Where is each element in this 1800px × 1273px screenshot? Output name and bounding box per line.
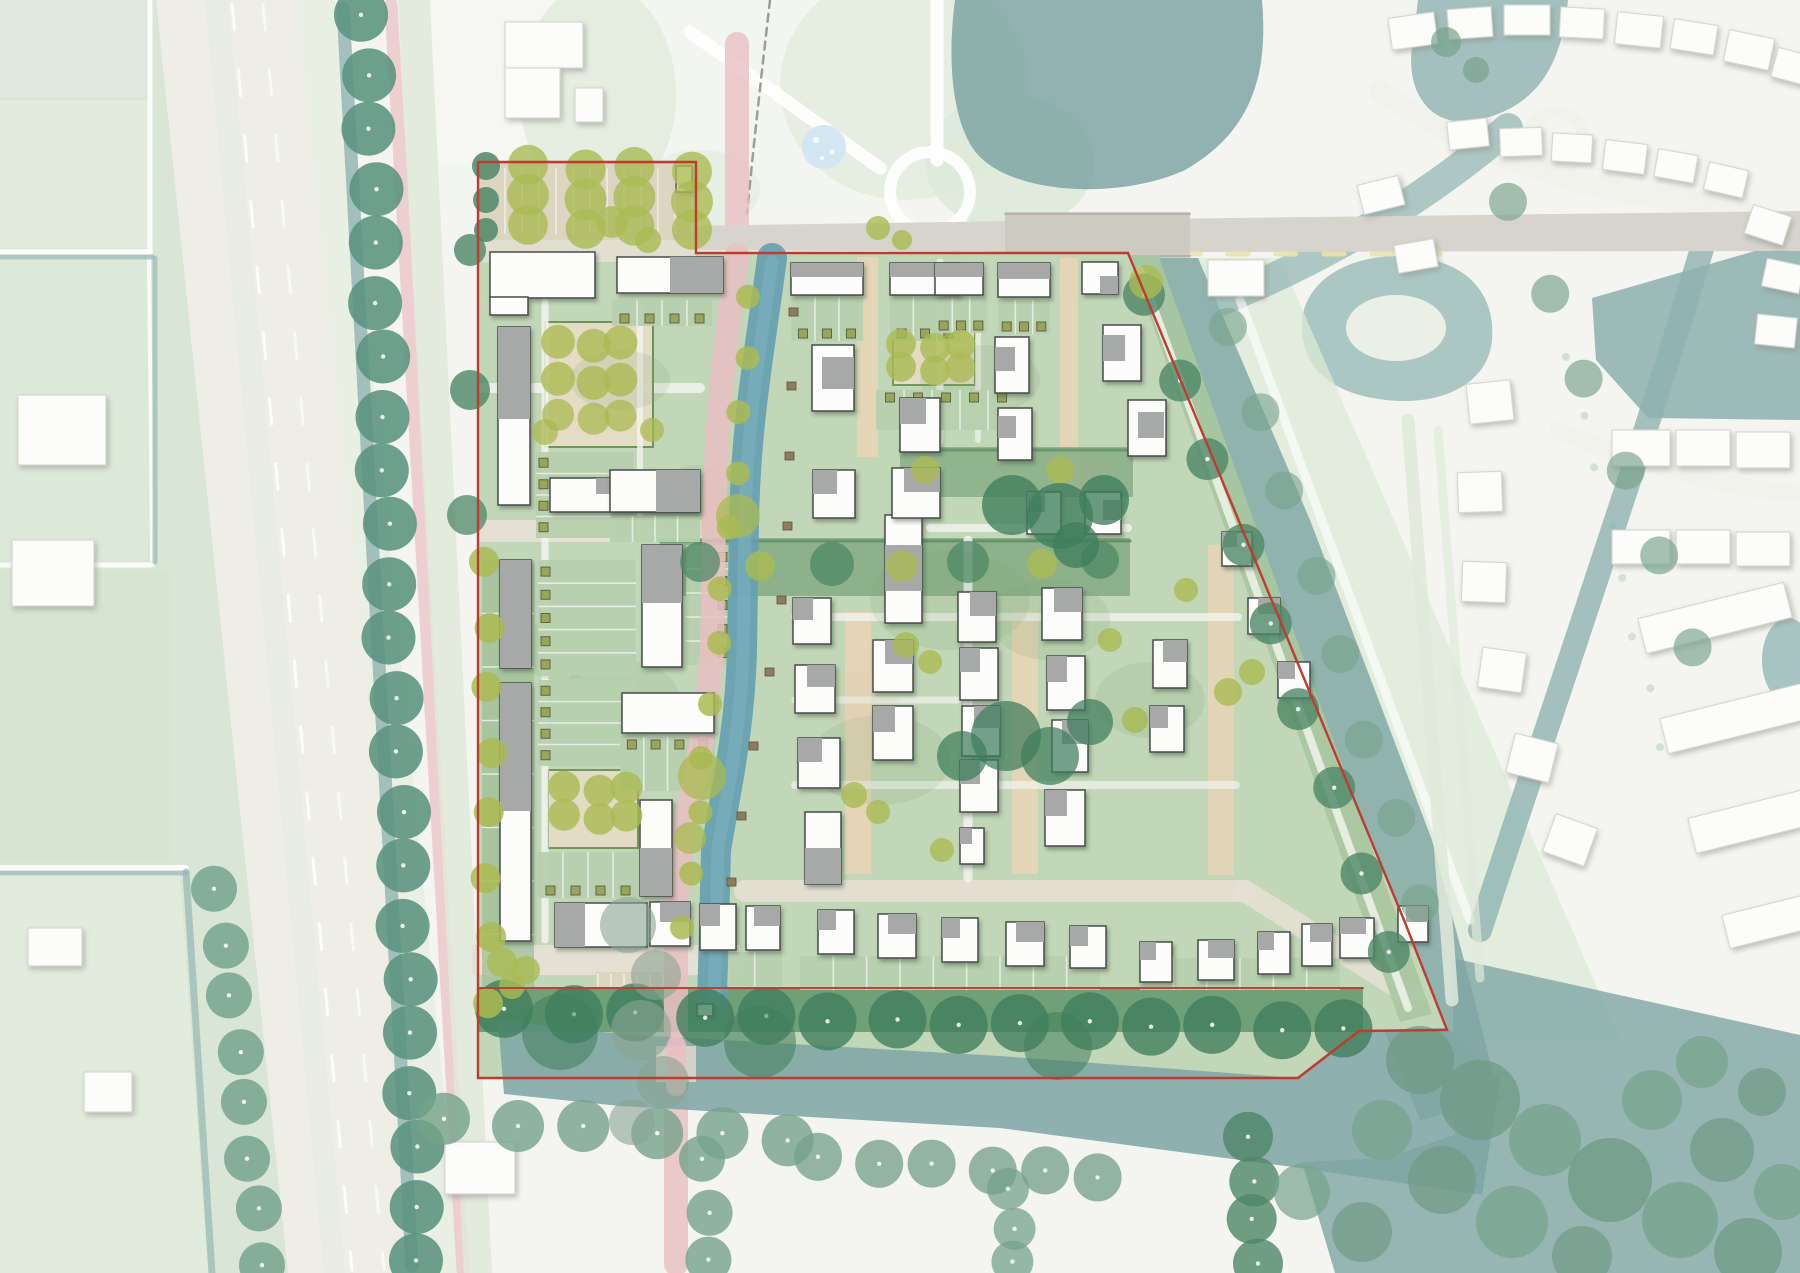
tree-center-dot bbox=[707, 1211, 711, 1215]
trees-38 bbox=[930, 838, 954, 862]
building-roof bbox=[942, 918, 960, 938]
building-roof bbox=[900, 398, 926, 424]
building-roof bbox=[670, 257, 723, 293]
trees-94 bbox=[1431, 27, 1461, 57]
farm-building bbox=[84, 1072, 132, 1112]
boundary-tree-column-tree bbox=[471, 672, 501, 702]
building-roof bbox=[1340, 918, 1366, 934]
trees-66 bbox=[1079, 475, 1129, 525]
garden-shed bbox=[823, 329, 832, 338]
terrace-row bbox=[935, 263, 983, 295]
house bbox=[998, 408, 1032, 460]
tree-center-dot bbox=[212, 887, 216, 891]
street-verge-marks-tree bbox=[1580, 412, 1588, 420]
building-roof bbox=[1140, 942, 1156, 960]
garden-shed bbox=[957, 321, 966, 330]
context-house bbox=[1447, 118, 1490, 150]
trees-87 bbox=[1274, 1164, 1330, 1220]
riverside-trees-tree bbox=[1565, 360, 1603, 398]
tree-center-dot bbox=[895, 1017, 899, 1021]
building-roof bbox=[1100, 276, 1118, 294]
garden-shed bbox=[799, 329, 808, 338]
house bbox=[818, 910, 854, 954]
garden-shed bbox=[675, 740, 684, 749]
building-roof bbox=[960, 648, 980, 672]
building-roof bbox=[798, 738, 822, 762]
building-roof bbox=[998, 263, 1050, 279]
jetty bbox=[749, 742, 758, 750]
tree-center-dot bbox=[442, 1117, 446, 1121]
tree-center-dot bbox=[366, 126, 370, 130]
tree-center-dot bbox=[373, 301, 377, 305]
trees-72 bbox=[600, 897, 656, 953]
trees-76 bbox=[609, 1099, 655, 1145]
tree-center-dot bbox=[700, 1157, 704, 1161]
context-house bbox=[1736, 432, 1790, 468]
jetty bbox=[777, 596, 786, 604]
courtyard-trees-tree bbox=[603, 326, 637, 360]
trees-62 bbox=[947, 541, 989, 583]
street-verge-marks-tree bbox=[1562, 353, 1570, 361]
trees-61 bbox=[810, 542, 854, 586]
house bbox=[793, 598, 831, 644]
context-house bbox=[1504, 5, 1550, 35]
context-building bbox=[575, 88, 603, 122]
house bbox=[1140, 942, 1172, 982]
riverside-trees-tree bbox=[1640, 536, 1678, 574]
house bbox=[1045, 790, 1085, 846]
house bbox=[798, 738, 840, 788]
garden-shed bbox=[620, 314, 629, 323]
tree-center-dot bbox=[380, 468, 384, 472]
garden-shed bbox=[541, 660, 550, 669]
trees-81 bbox=[1642, 1182, 1718, 1258]
house bbox=[900, 398, 940, 452]
tree-center-dot bbox=[401, 863, 405, 867]
river-tree-row-tree bbox=[1298, 557, 1336, 595]
house bbox=[1042, 588, 1082, 640]
context-house bbox=[1559, 7, 1605, 39]
garden-cells bbox=[538, 560, 636, 676]
trees-67 bbox=[1053, 522, 1099, 568]
canal-tree-row-tree bbox=[679, 862, 703, 886]
garden-shed bbox=[539, 523, 548, 532]
trees-54 bbox=[640, 418, 664, 442]
tree-center-dot bbox=[929, 1161, 933, 1165]
tree-center-dot bbox=[380, 415, 384, 419]
tree-center-dot bbox=[1018, 1021, 1022, 1025]
courtyard-trees-tree bbox=[886, 352, 916, 382]
tree-center-dot bbox=[409, 977, 413, 981]
tree-center-dot bbox=[224, 943, 228, 947]
context-house bbox=[1602, 140, 1647, 175]
building-roof bbox=[754, 906, 780, 926]
courtyard-trees-tree bbox=[548, 771, 580, 803]
tree-center-dot bbox=[381, 354, 385, 358]
jetty bbox=[783, 522, 792, 530]
canal-tree-row-tree bbox=[736, 346, 760, 370]
courtyard-trees-tree bbox=[610, 772, 642, 804]
building-roof bbox=[1163, 640, 1187, 662]
jetty bbox=[727, 878, 736, 886]
parking-trees-tree bbox=[672, 210, 712, 250]
tree-center-dot bbox=[388, 522, 392, 526]
garden-shed bbox=[571, 886, 580, 895]
building-roof bbox=[960, 828, 972, 844]
context-house bbox=[1755, 314, 1798, 348]
trees-57 bbox=[1027, 549, 1057, 579]
street-verge-marks-tree bbox=[1618, 574, 1626, 582]
context-house bbox=[1676, 530, 1730, 564]
tree-center-dot bbox=[387, 582, 391, 586]
trees-71 bbox=[1067, 699, 1113, 745]
canal-tree-row-tree bbox=[670, 916, 694, 940]
trees-85 bbox=[1476, 1186, 1548, 1258]
tree-center-dot bbox=[1250, 1217, 1254, 1221]
trees-47 bbox=[866, 216, 890, 240]
garden-shed bbox=[541, 637, 550, 646]
garden-shed bbox=[1020, 322, 1029, 331]
building-footprint bbox=[490, 252, 595, 298]
context-house bbox=[1500, 127, 1543, 156]
trees-56 bbox=[886, 550, 918, 582]
tree-center-dot bbox=[260, 1263, 264, 1267]
garden-shed bbox=[539, 480, 548, 489]
garden-shed bbox=[651, 740, 660, 749]
house bbox=[1150, 706, 1184, 752]
garden-shed bbox=[942, 393, 951, 402]
house bbox=[812, 345, 854, 411]
trees-48 bbox=[892, 230, 912, 250]
house bbox=[700, 904, 736, 950]
tree-center-dot bbox=[1010, 1259, 1014, 1263]
building-roof bbox=[818, 910, 836, 930]
masterplan-canvas bbox=[0, 0, 1800, 1273]
tree-center-dot bbox=[414, 1258, 418, 1262]
house bbox=[1070, 926, 1106, 968]
garden-shed bbox=[541, 686, 550, 695]
garden-shed bbox=[939, 321, 948, 330]
trees-59 bbox=[1046, 456, 1074, 484]
trees-41 bbox=[1122, 707, 1148, 733]
tree-center-dot bbox=[400, 924, 404, 928]
trees-79 bbox=[1509, 1104, 1581, 1176]
garden-shed bbox=[1037, 322, 1046, 331]
fields-4 bbox=[0, 570, 170, 862]
tree-center-dot bbox=[239, 1050, 243, 1054]
tree-center-dot bbox=[1012, 1227, 1016, 1231]
trees-26 bbox=[472, 152, 500, 180]
house bbox=[1258, 932, 1290, 974]
context-house bbox=[1457, 471, 1502, 513]
house bbox=[805, 812, 841, 884]
garden-shed bbox=[886, 393, 895, 402]
building-roof bbox=[1208, 940, 1234, 958]
tree-center-dot bbox=[245, 1156, 249, 1160]
trees-80 bbox=[1568, 1138, 1652, 1222]
tree-center-dot bbox=[394, 696, 398, 700]
riverside-trees-tree bbox=[1531, 275, 1569, 313]
tree-center-dot bbox=[1006, 1187, 1010, 1191]
trees-33 bbox=[918, 650, 942, 674]
trees-40 bbox=[1098, 628, 1122, 652]
context-house bbox=[1477, 647, 1526, 693]
tree-center-dot bbox=[1246, 1135, 1250, 1139]
building-roof bbox=[500, 560, 531, 668]
tree-center-dot bbox=[720, 1131, 724, 1135]
tree-center-dot bbox=[1149, 1024, 1153, 1028]
riverside-trees-tree bbox=[1674, 628, 1712, 666]
building-roof bbox=[1258, 932, 1274, 950]
apartment-slab bbox=[640, 800, 672, 896]
building-roof bbox=[1070, 926, 1088, 946]
courtyard-trees-tree bbox=[541, 325, 575, 359]
trees-60 bbox=[680, 542, 720, 582]
trees-37 bbox=[1239, 659, 1265, 685]
garden-shed bbox=[847, 329, 856, 338]
trees-69 bbox=[1021, 727, 1079, 785]
house bbox=[1006, 922, 1044, 966]
house bbox=[1198, 940, 1234, 980]
garden-shed bbox=[627, 740, 636, 749]
trees-75 bbox=[637, 1056, 689, 1108]
house bbox=[960, 828, 984, 864]
tree-center-dot bbox=[402, 810, 406, 814]
apartment-slab bbox=[498, 327, 530, 505]
context-house bbox=[1208, 260, 1264, 296]
trees-58 bbox=[911, 456, 939, 484]
building-roof bbox=[1103, 335, 1125, 361]
building-roof bbox=[498, 327, 530, 419]
tree-center-dot bbox=[785, 1138, 789, 1142]
tree-center-dot bbox=[1241, 543, 1245, 547]
tree-center-dot bbox=[227, 993, 231, 997]
tree-center-dot bbox=[956, 1023, 960, 1027]
park-pond bbox=[802, 125, 846, 169]
tree-center-dot bbox=[1296, 707, 1300, 711]
tree-center-dot bbox=[877, 1162, 881, 1166]
building-roof bbox=[1047, 656, 1067, 682]
garden-shed bbox=[541, 567, 550, 576]
context-house bbox=[1736, 532, 1790, 566]
courtyard-trees-tree bbox=[920, 356, 950, 386]
house bbox=[878, 914, 916, 958]
tree-center-dot bbox=[374, 187, 378, 191]
building-roof bbox=[1054, 588, 1082, 612]
garden-shed bbox=[670, 314, 679, 323]
farm-building bbox=[28, 928, 82, 966]
courtyard-trees-tree bbox=[541, 362, 575, 396]
tree-center-dot bbox=[706, 1257, 710, 1261]
canal-tree-row-tree bbox=[707, 631, 731, 655]
trees-3 bbox=[522, 994, 598, 1070]
building-roof bbox=[1150, 706, 1168, 728]
trees-29 bbox=[450, 370, 490, 410]
garden-shed bbox=[541, 590, 550, 599]
trees-39 bbox=[1174, 578, 1198, 602]
building-roof bbox=[888, 914, 916, 934]
terrace-row bbox=[617, 257, 723, 293]
tree-center-dot bbox=[1088, 1019, 1092, 1023]
tree-center-dot bbox=[516, 1124, 520, 1128]
tree-center-dot bbox=[1387, 950, 1391, 954]
jetty bbox=[789, 308, 798, 316]
farm-building bbox=[18, 395, 106, 465]
street-verge-marks-tree bbox=[1646, 684, 1654, 692]
trees-36 bbox=[1214, 678, 1242, 706]
trees-93 bbox=[1738, 1068, 1786, 1116]
building-roof bbox=[995, 347, 1015, 371]
trees-74 bbox=[611, 1000, 671, 1060]
jetty bbox=[787, 382, 796, 390]
courtyard-trees-tree bbox=[610, 800, 642, 832]
trees-92 bbox=[1676, 1036, 1728, 1088]
canal-tree-row-tree bbox=[708, 577, 732, 601]
trees-88 bbox=[1332, 1202, 1392, 1262]
trees-31 bbox=[447, 495, 487, 535]
building-wing bbox=[490, 297, 528, 315]
trees-90 bbox=[1690, 1118, 1754, 1182]
garden-shed bbox=[998, 393, 1007, 402]
courtyard-trees-tree bbox=[604, 400, 636, 432]
tree-center-dot bbox=[1256, 1261, 1260, 1265]
building-roof bbox=[822, 357, 854, 389]
trees-83 bbox=[1352, 1100, 1412, 1160]
bridge-deck bbox=[1005, 212, 1190, 258]
house bbox=[1302, 924, 1332, 966]
tree-center-dot bbox=[1205, 457, 1209, 461]
top-park-10 bbox=[813, 137, 819, 143]
tree-center-dot bbox=[257, 1206, 261, 1210]
context-house bbox=[1676, 430, 1730, 466]
tree-center-dot bbox=[374, 240, 378, 244]
house bbox=[1153, 640, 1187, 688]
garden-shed bbox=[695, 314, 704, 323]
canal-tree-row-tree bbox=[688, 800, 712, 824]
trees-30 bbox=[454, 234, 486, 266]
garden-shed bbox=[541, 729, 550, 738]
tree-center-dot bbox=[408, 1030, 412, 1034]
building-roof bbox=[1278, 662, 1295, 679]
courtyard-trees-tree bbox=[548, 799, 580, 831]
house bbox=[1128, 400, 1166, 456]
tree-center-dot bbox=[502, 1007, 506, 1011]
trees-55 bbox=[745, 551, 775, 581]
tree-center-dot bbox=[1359, 871, 1363, 875]
house bbox=[746, 906, 780, 950]
street-verge-marks-tree bbox=[1590, 463, 1598, 471]
context-house bbox=[1461, 561, 1506, 603]
garden-shed bbox=[541, 751, 550, 760]
garden-shed bbox=[541, 708, 550, 717]
riverside-trees-tree bbox=[1607, 452, 1645, 490]
tree-center-dot bbox=[816, 1155, 820, 1159]
fields-1 bbox=[0, 0, 150, 98]
tree-center-dot bbox=[1095, 1175, 1099, 1179]
canal-tree-row-tree bbox=[736, 285, 760, 309]
riverside-trees-tree bbox=[1489, 183, 1527, 221]
top-park-12 bbox=[820, 156, 824, 160]
tree-center-dot bbox=[581, 1124, 585, 1128]
tree-center-dot bbox=[1210, 1023, 1214, 1027]
house bbox=[995, 337, 1029, 393]
building-roof bbox=[813, 470, 837, 494]
house bbox=[942, 918, 978, 962]
tree-center-dot bbox=[407, 1091, 411, 1095]
garden-shed bbox=[596, 886, 605, 895]
terrace-row bbox=[791, 263, 863, 295]
garden-shed bbox=[539, 501, 548, 510]
boundary-tree-column-tree bbox=[469, 547, 499, 577]
river-tree-row-tree bbox=[1209, 308, 1247, 346]
building-roof bbox=[793, 598, 813, 620]
tree-center-dot bbox=[1341, 1026, 1345, 1030]
building-roof bbox=[656, 470, 700, 512]
tree-center-dot bbox=[367, 73, 371, 77]
river-tree-row-tree bbox=[1265, 471, 1303, 509]
jetty bbox=[765, 668, 774, 676]
context-building bbox=[505, 68, 560, 118]
trees-43 bbox=[678, 752, 726, 800]
courtyard-trees-tree bbox=[603, 363, 637, 397]
river-tree-row-tree bbox=[1401, 884, 1439, 922]
apartment-slab bbox=[642, 545, 682, 667]
house bbox=[795, 665, 835, 713]
canal-tree-row-tree bbox=[726, 400, 750, 424]
tree-center-dot bbox=[386, 635, 390, 639]
house bbox=[958, 592, 996, 642]
trees-42 bbox=[716, 494, 760, 538]
boundary-tree-column-tree bbox=[471, 863, 501, 893]
garden-shed bbox=[970, 393, 979, 402]
building-roof bbox=[791, 263, 863, 277]
house bbox=[1103, 325, 1141, 381]
garden-shed bbox=[541, 614, 550, 623]
house bbox=[813, 470, 855, 518]
garden-shed bbox=[546, 886, 555, 895]
trees-5 bbox=[1024, 1012, 1092, 1080]
context-house bbox=[1614, 12, 1663, 49]
courtyard-trees-tree bbox=[945, 353, 975, 383]
jetty bbox=[785, 452, 794, 460]
tree-center-dot bbox=[242, 1100, 246, 1104]
context-house bbox=[1670, 19, 1718, 56]
tree-center-dot bbox=[415, 1205, 419, 1209]
fields-2 bbox=[0, 100, 150, 248]
tree-center-dot bbox=[1043, 1168, 1047, 1172]
tree-center-dot bbox=[394, 749, 398, 753]
footpath-tan bbox=[1208, 545, 1234, 875]
tree-center-dot bbox=[703, 1016, 707, 1020]
trees-89 bbox=[1622, 1070, 1682, 1130]
apartment-slab bbox=[500, 560, 531, 668]
garden-shed bbox=[1002, 322, 1011, 331]
building-roof bbox=[935, 263, 983, 277]
trees-34 bbox=[841, 782, 867, 808]
building-roof bbox=[700, 904, 720, 926]
farm-building bbox=[12, 540, 94, 606]
house bbox=[873, 706, 913, 760]
terrace-row bbox=[998, 263, 1050, 297]
context-house bbox=[1551, 133, 1592, 163]
building-roof bbox=[642, 545, 682, 603]
pond-island bbox=[1346, 295, 1446, 361]
trees-32 bbox=[893, 632, 919, 658]
context-house bbox=[1466, 380, 1514, 424]
building-roof bbox=[1045, 790, 1067, 816]
river-tree-row-tree bbox=[1321, 635, 1359, 673]
trees-45 bbox=[596, 206, 628, 238]
